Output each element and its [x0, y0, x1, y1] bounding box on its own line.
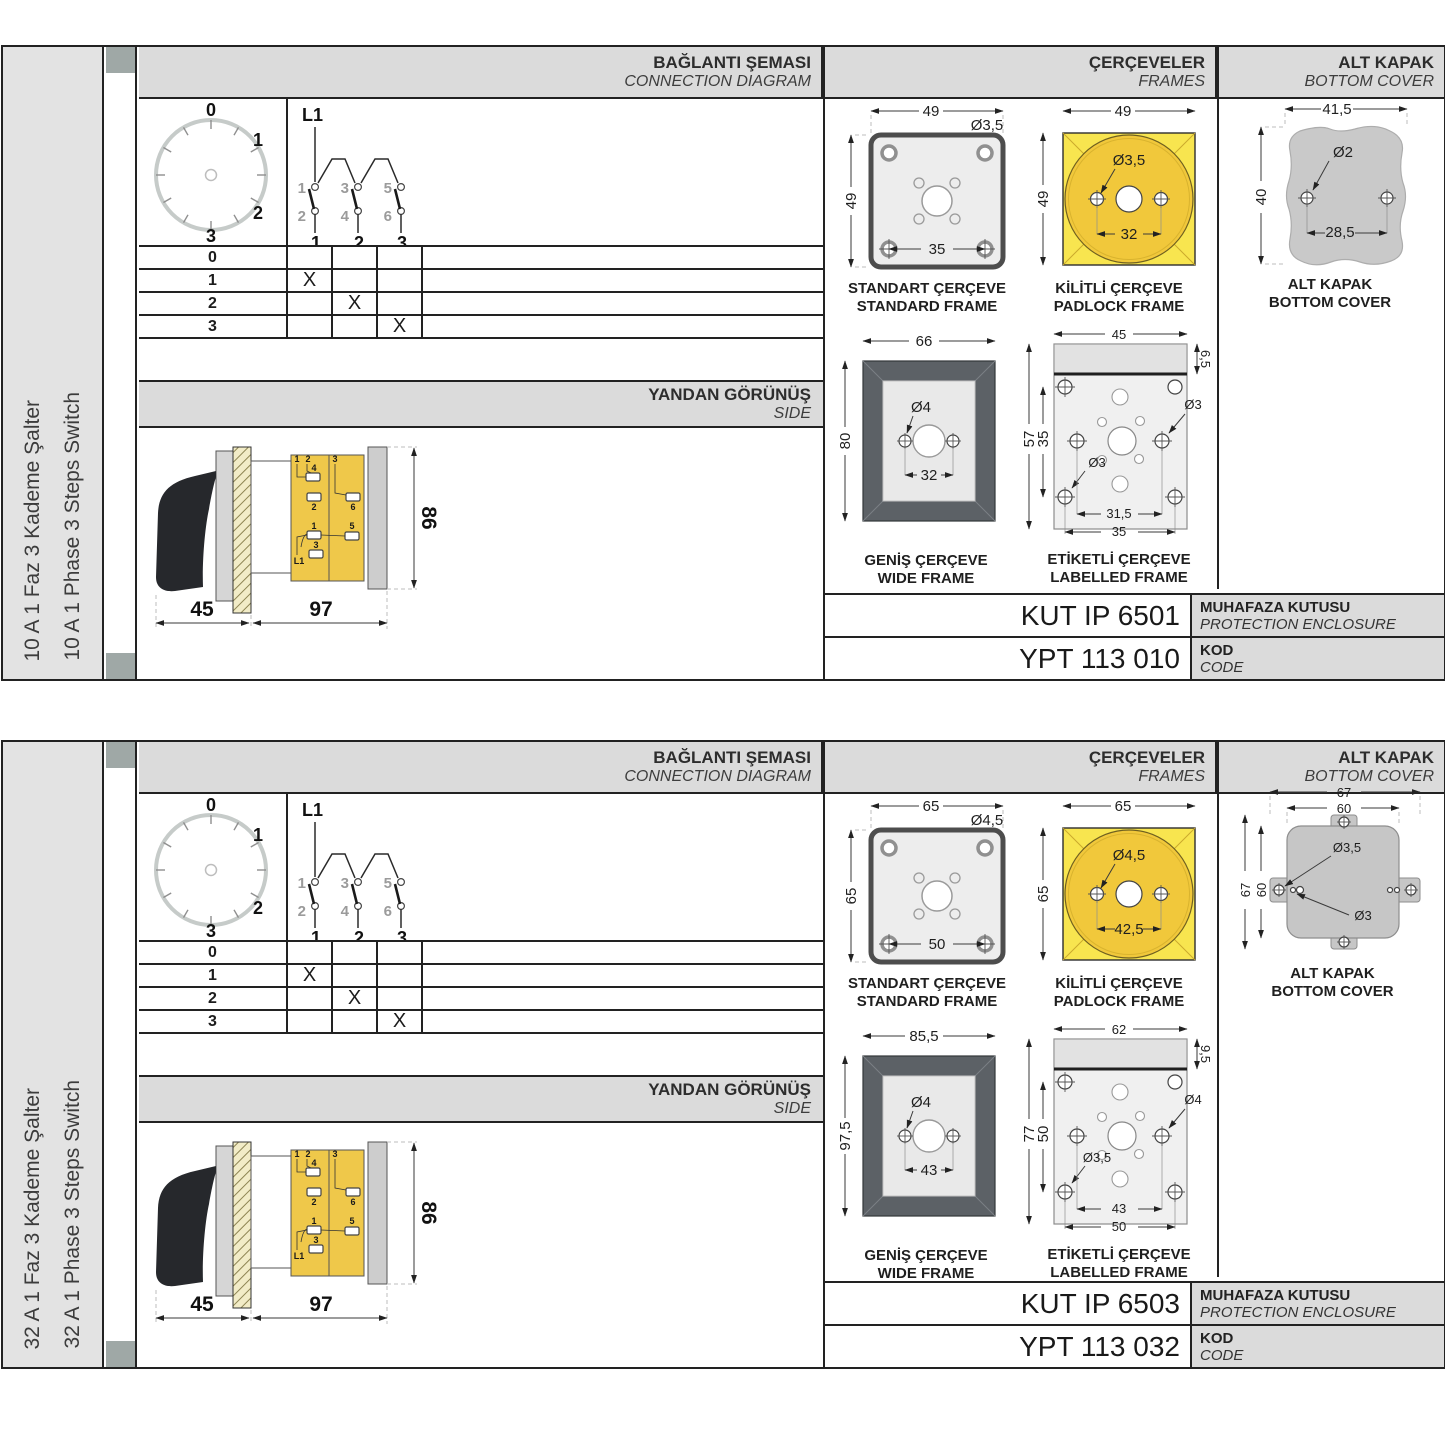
mark-cell: X [378, 1011, 423, 1032]
terminal-label: 2 [305, 1149, 310, 1159]
phase-label: L1 [302, 800, 323, 820]
terminal-label: L1 [294, 556, 305, 566]
circuit-diagram: L1 1 3 5 2 4 6 1 2 [288, 99, 823, 245]
frame-caption-tr: KİLİTLİ ÇERÇEVE [1027, 975, 1211, 993]
terminal-label: L1 [294, 1251, 305, 1261]
terminal-label: 3 [313, 1235, 318, 1245]
dim-body: 97 [309, 598, 332, 621]
dim-width: 65 [923, 798, 940, 815]
wide-frame-figure: 66 Ø4 32 80 GENİŞ Ç [831, 333, 1021, 588]
terminal-1: 1 [311, 928, 321, 940]
dim-width-outer: 67 [1337, 786, 1351, 800]
terminal-label: 4 [311, 1158, 316, 1168]
terminal-label: 1 [294, 454, 299, 464]
header-connection: BAĞLANTI ŞEMASI CONNECTION DIAGRAM [139, 47, 823, 97]
side-view-drawing: 1 2 4 2 3 6 1 5 3 L1 86 45 97 [145, 1126, 645, 1362]
dim-height: 97,5 [837, 1121, 854, 1150]
dim-width: 49 [923, 103, 940, 120]
column-divider [823, 742, 825, 1367]
mark-cell: X [333, 988, 378, 1009]
terminal-label: 2 [311, 502, 316, 512]
header-cover: ALT KAPAK BOTTOM COVER [1217, 47, 1444, 97]
standard-frame-figure: 65 Ø4,5 65 50 STANDART ÇERÇE [835, 798, 1019, 1011]
dim-width-inner: 60 [1337, 801, 1351, 816]
terminal-2: 2 [354, 928, 364, 940]
empty-cell [423, 247, 823, 268]
labelled-frame-drawing: 45 6,5 57 [1021, 329, 1221, 544]
switch-dial-diagram: 0 1 2 3 [139, 99, 288, 245]
side-view-header: YANDAN GÖRÜNÜŞ SIDE [139, 1075, 823, 1123]
dim-bottom-outer: 35 [1112, 524, 1126, 539]
dial-position-3: 3 [206, 226, 216, 245]
enclosure-label-en: PROTECTION ENCLOSURE [1200, 616, 1436, 633]
bottom-cover-drawing: 67 60 67 60 Ø3,5 [1225, 786, 1440, 958]
code-row: YPT 113 010 KOD CODE [825, 636, 1444, 679]
mark-cell [378, 988, 423, 1009]
mark-cell: X [288, 270, 333, 291]
dim-hole-big: Ø3,5 [1333, 840, 1361, 855]
connection-diagram-box: 0 1 2 3 L1 1 [139, 99, 823, 247]
standard-frame-drawing: 65 Ø4,5 65 50 [835, 798, 1019, 968]
row-label: 2 [139, 293, 288, 314]
sidebar-product-labels: 10 A 1 Faz 3 Kademe Şalter 10 A 1 Phase … [3, 47, 104, 679]
mark-cell [333, 942, 378, 963]
circuit-cell: L1 1 3 5 2 4 6 1 2 [288, 794, 823, 940]
terminal-label: 1 [294, 1149, 299, 1159]
contact-6: 6 [384, 208, 392, 225]
table-row: 0 [139, 247, 823, 270]
header-cover-en: BOTTOM COVER [1227, 73, 1434, 91]
wide-frame-figure: 85,5 Ø4 43 97,5 GEN [831, 1028, 1021, 1283]
contact-3: 3 [341, 875, 349, 892]
dim-bottom-inner: 31,5 [1106, 506, 1131, 521]
contact-4: 4 [341, 208, 350, 225]
dim-height: 65 [1035, 886, 1052, 903]
dim-height: 40 [1253, 189, 1270, 206]
mark-cell: X [378, 316, 423, 337]
dim-height: 49 [843, 193, 860, 210]
product-code-value: YPT 113 032 [825, 1326, 1190, 1367]
dim-front: 45 [190, 598, 214, 621]
connection-diagram-box: 0 1 2 3 L1 1 [139, 794, 823, 942]
side-view-header: YANDAN GÖRÜNÜŞ SIDE [139, 380, 823, 428]
labelled-frame-figure: 45 6,5 57 [1021, 329, 1217, 587]
row-label: 2 [139, 988, 288, 1009]
product-section-32a: 32 A 1 Faz 3 Kademe Şalter 32 A 1 Phase … [1, 740, 1445, 1369]
dim-bottom-inner: 43 [1112, 1201, 1126, 1216]
header-frames-tr: ÇERÇEVELER [833, 53, 1205, 73]
terminal-1: 1 [311, 233, 321, 245]
padlock-frame-figure: 65 Ø4,5 42,5 65 [1027, 798, 1211, 1011]
code-rows: KUT IP 6503 MUHAFAZA KUTUSU PROTECTION E… [825, 1281, 1444, 1367]
terminal-label: 5 [349, 521, 354, 531]
row-label: 0 [139, 247, 288, 268]
frame-caption-en: PADLOCK FRAME [1027, 298, 1211, 316]
table-row: 3 X [139, 316, 823, 339]
mark-cell [288, 988, 333, 1009]
empty-cell [423, 988, 823, 1009]
terminal-3: 3 [397, 928, 407, 940]
mark-cell [288, 293, 333, 314]
dim-width: 62 [1112, 1024, 1126, 1037]
enclosure-code-value: KUT IP 6503 [825, 1283, 1190, 1324]
enclosure-row: KUT IP 6503 MUHAFAZA KUTUSU PROTECTION E… [825, 1281, 1444, 1324]
section-main: BAĞLANTI ŞEMASI CONNECTION DIAGRAM ÇERÇE… [139, 47, 1444, 679]
empty-cell [423, 270, 823, 291]
contact-2: 2 [298, 903, 306, 920]
terminal-label: 1 [311, 1216, 316, 1226]
frame-caption-en: STANDARD FRAME [835, 298, 1019, 316]
header-cover-en: BOTTOM COVER [1227, 768, 1434, 786]
dim-body: 97 [309, 1293, 332, 1316]
dim-hole: Ø2 [1333, 144, 1353, 161]
dim-height: 65 [843, 888, 860, 905]
product-section-10a: 10 A 1 Faz 3 Kademe Şalter 10 A 1 Phase … [1, 45, 1445, 681]
header-cover-tr: ALT KAPAK [1227, 748, 1434, 768]
switch-dial-diagram: 0 1 2 3 [139, 794, 288, 940]
binder-mark-bottom [106, 653, 135, 679]
side-view-drawing: 1 2 4 2 3 6 1 5 3 L1 86 45 97 [145, 431, 645, 667]
switching-table: 0 1 X 2 X 3 [139, 247, 823, 339]
bottom-cover-figure: 41,5 Ø2 40 28,5 ALT KAPAK BOTTOM COVER [1225, 101, 1435, 312]
dial-position-2: 2 [253, 898, 263, 918]
binder-gutter [106, 742, 137, 1367]
cover-caption-en: BOTTOM COVER [1225, 983, 1440, 1001]
header-cover-tr: ALT KAPAK [1227, 53, 1434, 73]
dim-height-inner: 60 [1254, 883, 1269, 897]
dim-height: 86 [417, 1201, 440, 1224]
side-view-header-tr: YANDAN GÖRÜNÜŞ [139, 1080, 811, 1100]
code-label-en: CODE [1200, 659, 1436, 676]
padlock-frame-figure: 49 Ø3,5 32 49 [1027, 103, 1211, 316]
dim-hole-small: Ø3 [1354, 908, 1371, 923]
wide-frame-drawing: 66 Ø4 32 80 [831, 333, 1021, 545]
dim-width: 45 [1112, 329, 1126, 342]
dim-width: 85,5 [909, 1028, 938, 1045]
frame-caption-tr: KİLİTLİ ÇERÇEVE [1027, 280, 1211, 298]
enclosure-label: MUHAFAZA KUTUSU PROTECTION ENCLOSURE [1190, 1283, 1444, 1324]
header-connection: BAĞLANTI ŞEMASI CONNECTION DIAGRAM [139, 742, 823, 792]
dim-inner-height: 50 [1035, 1126, 1052, 1143]
contact-4: 4 [341, 903, 350, 920]
header-cover: ALT KAPAK BOTTOM COVER [1217, 742, 1444, 792]
bottom-cover-figure: 67 60 67 60 Ø3,5 [1225, 786, 1440, 1001]
mark-cell [288, 316, 333, 337]
cover-caption-en: BOTTOM COVER [1225, 294, 1435, 312]
standard-frame-drawing: 49 Ø3,5 49 35 [835, 103, 1019, 273]
header-frames-en: FRAMES [833, 73, 1205, 91]
padlock-frame-drawing: 49 Ø3,5 32 49 [1027, 103, 1211, 273]
frame-caption-en: LABELLED FRAME [1021, 1264, 1217, 1282]
mark-cell: X [333, 293, 378, 314]
dim-width: 66 [916, 333, 933, 350]
empty-cell [423, 942, 823, 963]
mark-cell [378, 247, 423, 268]
code-label-tr: KOD [1200, 642, 1436, 659]
header-connection-tr: BAĞLANTI ŞEMASI [149, 748, 811, 768]
empty-cell [423, 316, 823, 337]
contact-1: 1 [298, 875, 306, 892]
dim-height-outer: 67 [1238, 883, 1253, 897]
terminal-label: 2 [305, 454, 310, 464]
frame-caption-tr: ETİKETLİ ÇERÇEVE [1021, 1246, 1217, 1264]
padlock-frame-drawing: 65 Ø4,5 42,5 65 [1027, 798, 1211, 968]
column-headers: BAĞLANTI ŞEMASI CONNECTION DIAGRAM ÇERÇE… [139, 47, 1444, 99]
switch-handle [156, 1166, 216, 1286]
code-label-en: CODE [1200, 1347, 1436, 1364]
empty-cell [423, 293, 823, 314]
dial-position-1: 1 [253, 130, 263, 150]
contact-3: 3 [341, 180, 349, 197]
circuit-cell: L1 1 3 5 2 4 6 1 2 [288, 99, 823, 245]
enclosure-label-en: PROTECTION ENCLOSURE [1200, 1304, 1436, 1321]
row-label: 1 [139, 965, 288, 986]
terminal-3: 3 [397, 233, 407, 245]
binder-mark-top [106, 742, 135, 768]
enclosure-label-tr: MUHAFAZA KUTUSU [1200, 599, 1436, 616]
dim-band: 6,5 [1198, 350, 1213, 368]
code-rows: KUT IP 6501 MUHAFAZA KUTUSU PROTECTION E… [825, 593, 1444, 679]
catalog-page: 10 A 1 Faz 3 Kademe Şalter 10 A 1 Phase … [0, 0, 1445, 1445]
binder-gutter [106, 47, 137, 679]
binder-mark-top [106, 47, 135, 73]
labelled-frame-drawing: 62 9,5 77 [1021, 1024, 1221, 1239]
table-row: 0 [139, 942, 823, 965]
table-row: 1 X [139, 965, 823, 988]
bottom-cover-drawing: 41,5 Ø2 40 28,5 [1225, 101, 1435, 269]
mark-cell [333, 270, 378, 291]
dim-width: 41,5 [1322, 101, 1351, 118]
dim-hole: Ø4,5 [971, 812, 1004, 829]
wide-frame-drawing: 85,5 Ø4 43 97,5 [831, 1028, 1021, 1240]
frame-caption-tr: STANDART ÇERÇEVE [835, 975, 1019, 993]
dim-height: 80 [837, 433, 854, 450]
enclosure-code-value: KUT IP 6501 [825, 595, 1190, 636]
dim-inner: 42,5 [1114, 921, 1143, 938]
mark-cell [378, 293, 423, 314]
mark-cell [288, 942, 333, 963]
dim-height: 49 [1035, 191, 1052, 208]
header-connection-en: CONNECTION DIAGRAM [149, 73, 811, 91]
contact-5: 5 [384, 875, 392, 892]
labelled-frame-figure: 62 9,5 77 [1021, 1024, 1217, 1282]
terminal-label: 3 [332, 1149, 337, 1159]
product-label-tr: 10 A 1 Faz 3 Kademe Şalter [21, 400, 45, 662]
phase-label: L1 [302, 105, 323, 125]
mark-cell [333, 247, 378, 268]
mark-cell [288, 1011, 333, 1032]
binder-mark-bottom [106, 1341, 135, 1367]
cover-caption-tr: ALT KAPAK [1225, 965, 1440, 983]
product-label-en: 10 A 1 Phase 3 Steps Switch [61, 392, 85, 661]
dim-hole: Ø3,5 [971, 117, 1004, 134]
mark-cell [333, 1011, 378, 1032]
mark-cell [333, 965, 378, 986]
side-view-header-en: SIDE [139, 1100, 811, 1118]
dial-cell: 0 1 2 3 [139, 794, 288, 940]
dim-hole: Ø4 [911, 399, 931, 416]
table-row: 3 X [139, 1011, 823, 1034]
dim-inner: 35 [929, 241, 946, 258]
frame-caption-en: STANDARD FRAME [835, 993, 1019, 1011]
header-frames: ÇERÇEVELER FRAMES [823, 742, 1217, 792]
side-view-header-tr: YANDAN GÖRÜNÜŞ [139, 385, 811, 405]
header-connection-en: CONNECTION DIAGRAM [149, 768, 811, 786]
dim-inner: 28,5 [1325, 224, 1354, 241]
mark-cell [378, 270, 423, 291]
dim-width: 49 [1115, 103, 1132, 120]
table-row: 2 X [139, 988, 823, 1011]
switch-handle [156, 471, 216, 591]
contact-2: 2 [298, 208, 306, 225]
dim-hole-left: Ø3,5 [1083, 1150, 1111, 1165]
terminal-label: 2 [311, 1197, 316, 1207]
row-label: 3 [139, 316, 288, 337]
dial-position-0: 0 [206, 100, 216, 120]
dial-cell: 0 1 2 3 [139, 99, 288, 245]
enclosure-row: KUT IP 6501 MUHAFAZA KUTUSU PROTECTION E… [825, 593, 1444, 636]
cover-caption-tr: ALT KAPAK [1225, 276, 1435, 294]
frame-caption-en: WIDE FRAME [831, 570, 1021, 588]
code-label: KOD CODE [1190, 638, 1444, 679]
dim-inner: 43 [921, 1162, 938, 1179]
dim-hole-right: Ø4 [1184, 1092, 1201, 1107]
terminal-label: 1 [311, 521, 316, 531]
terminal-label: 4 [311, 463, 316, 473]
section-main: BAĞLANTI ŞEMASI CONNECTION DIAGRAM ÇERÇE… [139, 742, 1444, 1367]
enclosure-label: MUHAFAZA KUTUSU PROTECTION ENCLOSURE [1190, 595, 1444, 636]
frame-caption-en: PADLOCK FRAME [1027, 993, 1211, 1011]
contact-1: 1 [298, 180, 306, 197]
dim-band: 9,5 [1198, 1045, 1213, 1063]
contact-5: 5 [384, 180, 392, 197]
code-label-tr: KOD [1200, 1330, 1436, 1347]
dim-inner: 32 [921, 467, 938, 484]
empty-cell [423, 965, 823, 986]
dim-width: 65 [1115, 798, 1132, 815]
column-divider [823, 47, 825, 679]
frame-caption-tr: STANDART ÇERÇEVE [835, 280, 1019, 298]
dim-inner: 50 [929, 936, 946, 953]
terminal-label: 3 [313, 540, 318, 550]
terminal-2: 2 [354, 233, 364, 245]
product-code-value: YPT 113 010 [825, 638, 1190, 679]
empty-cell [423, 1011, 823, 1032]
dim-front: 45 [190, 1293, 214, 1316]
contact-6: 6 [384, 903, 392, 920]
row-label: 3 [139, 1011, 288, 1032]
code-label: KOD CODE [1190, 1326, 1444, 1367]
mark-cell [378, 942, 423, 963]
frame-caption-en: LABELLED FRAME [1021, 569, 1217, 587]
dim-bottom-outer: 50 [1112, 1219, 1126, 1234]
header-frames-tr: ÇERÇEVELER [833, 748, 1205, 768]
frame-caption-tr: GENİŞ ÇERÇEVE [831, 552, 1021, 570]
terminal-label: 6 [350, 1197, 355, 1207]
circuit-diagram: L1 1 3 5 2 4 6 1 2 [288, 794, 823, 940]
dial-position-0: 0 [206, 795, 216, 815]
standard-frame-figure: 49 Ø3,5 49 35 STANDART ÇERÇE [835, 103, 1019, 316]
dim-inner: 32 [1121, 226, 1138, 243]
header-frames-en: FRAMES [833, 768, 1205, 786]
row-label: 0 [139, 942, 288, 963]
mark-cell [378, 965, 423, 986]
side-view-header-en: SIDE [139, 405, 811, 423]
enclosure-label-tr: MUHAFAZA KUTUSU [1200, 1287, 1436, 1304]
table-row: 1 X [139, 270, 823, 293]
switching-table: 0 1 X 2 X 3 [139, 942, 823, 1034]
sidebar-product-labels: 32 A 1 Faz 3 Kademe Şalter 32 A 1 Phase … [3, 742, 104, 1367]
header-frames: ÇERÇEVELER FRAMES [823, 47, 1217, 97]
dim-hole: Ø3,5 [1113, 152, 1146, 169]
dial-position-3: 3 [206, 921, 216, 940]
dim-hole-left: Ø3 [1088, 455, 1105, 470]
mark-cell [288, 247, 333, 268]
mark-cell [333, 316, 378, 337]
dim-hole-right: Ø3 [1184, 397, 1201, 412]
product-label-en: 32 A 1 Phase 3 Steps Switch [61, 1080, 85, 1349]
mark-cell: X [288, 965, 333, 986]
frame-caption-tr: GENİŞ ÇERÇEVE [831, 1247, 1021, 1265]
dim-inner-height: 35 [1035, 431, 1052, 448]
frame-caption-tr: ETİKETLİ ÇERÇEVE [1021, 551, 1217, 569]
terminal-label: 5 [349, 1216, 354, 1226]
code-row: YPT 113 032 KOD CODE [825, 1324, 1444, 1367]
product-label-tr: 32 A 1 Faz 3 Kademe Şalter [21, 1088, 45, 1350]
table-row: 2 X [139, 293, 823, 316]
terminal-label: 3 [332, 454, 337, 464]
dim-height: 86 [417, 506, 440, 529]
dim-hole: Ø4 [911, 1094, 931, 1111]
dim-hole: Ø4,5 [1113, 847, 1146, 864]
dial-position-2: 2 [253, 203, 263, 223]
dial-position-1: 1 [253, 825, 263, 845]
terminal-label: 6 [350, 502, 355, 512]
row-label: 1 [139, 270, 288, 291]
header-connection-tr: BAĞLANTI ŞEMASI [149, 53, 811, 73]
